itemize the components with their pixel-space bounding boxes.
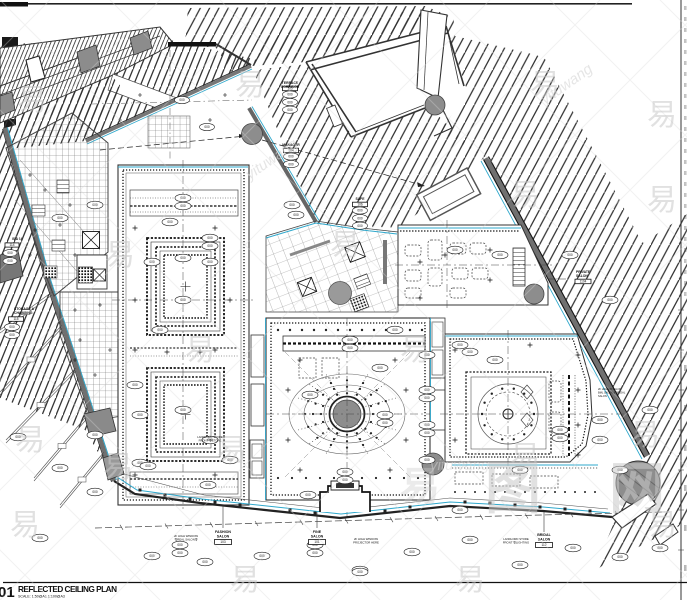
svg-text:115: 115 (13, 317, 18, 321)
svg-text:000: 000 (570, 546, 576, 550)
svg-text:00: 00 (683, 149, 687, 153)
svg-text:000: 000 (167, 220, 173, 224)
svg-text:CORRIDOR: CORRIDOR (281, 85, 300, 89)
svg-text:000: 000 (617, 555, 623, 559)
svg-text:000: 000 (57, 216, 63, 220)
svg-text:000: 000 (180, 204, 186, 208)
svg-text:000: 000 (357, 224, 363, 228)
svg-text:000: 000 (305, 493, 311, 497)
svg-text:000: 000 (683, 325, 687, 331)
svg-text:000: 000 (179, 98, 185, 102)
svg-text:000: 000 (357, 216, 363, 220)
svg-text:000: 000 (177, 543, 183, 547)
svg-text:000: 000 (293, 213, 299, 217)
svg-text:000: 000 (177, 551, 183, 555)
svg-text:000: 000 (287, 100, 293, 104)
svg-text:000: 000 (452, 248, 458, 252)
svg-text:00: 00 (683, 17, 687, 21)
svg-text:106: 106 (357, 203, 363, 207)
svg-text:000: 000 (683, 525, 687, 531)
svg-text:000: 000 (9, 325, 15, 329)
svg-text:000: 000 (92, 490, 98, 494)
svg-text:易: 易 (103, 451, 133, 484)
svg-text:SALON: SALON (576, 274, 588, 278)
svg-text:000: 000 (180, 408, 186, 412)
svg-text:000: 000 (342, 478, 348, 482)
svg-text:易: 易 (15, 424, 45, 457)
svg-text:000: 000 (683, 445, 687, 451)
svg-text:易: 易 (230, 564, 260, 597)
svg-text:易: 易 (105, 239, 135, 272)
svg-text:000: 000 (357, 209, 363, 213)
svg-text:易: 易 (647, 99, 677, 132)
svg-text:易: 易 (217, 434, 247, 467)
svg-text:易: 易 (17, 84, 47, 117)
svg-text:000: 000 (457, 343, 463, 347)
svg-text:000: 000 (9, 333, 15, 337)
svg-text:000: 000 (205, 483, 211, 487)
svg-text:000: 000 (145, 464, 151, 468)
svg-text:00: 00 (683, 270, 687, 274)
svg-text:易: 易 (400, 334, 430, 367)
svg-text:00: 00 (683, 105, 687, 109)
svg-text:000: 000 (307, 393, 313, 397)
svg-text:000: 000 (382, 421, 388, 425)
svg-text:易: 易 (455, 564, 485, 597)
svg-text:101: 101 (314, 540, 320, 544)
svg-text:00: 00 (683, 160, 687, 164)
svg-text:易: 易 (10, 509, 40, 542)
svg-text:000: 000 (287, 108, 293, 112)
svg-text:易: 易 (400, 465, 440, 509)
svg-text:000: 000 (467, 538, 473, 542)
svg-text:00: 00 (683, 72, 687, 76)
svg-text:00: 00 (683, 204, 687, 208)
svg-text:REFLECTED CEILING PLAN: REFLECTED CEILING PLAN (18, 585, 117, 594)
svg-text:00: 00 (683, 83, 687, 87)
svg-text:000: 000 (312, 551, 318, 555)
svg-text:000: 000 (683, 485, 687, 491)
svg-text:000: 000 (409, 550, 415, 554)
svg-text:000: 000 (92, 433, 98, 437)
svg-text:00: 00 (683, 171, 687, 175)
svg-text:易: 易 (630, 419, 660, 452)
svg-text:00: 00 (683, 182, 687, 186)
svg-text:00: 00 (683, 50, 687, 54)
svg-text:易: 易 (235, 69, 265, 102)
svg-text:000: 000 (557, 428, 563, 432)
svg-text:00: 00 (683, 6, 687, 10)
svg-text:1104: 1104 (580, 280, 587, 284)
svg-text:000: 000 (683, 405, 687, 411)
svg-text:00: 00 (683, 94, 687, 98)
svg-text:000: 000 (204, 125, 210, 129)
svg-text:000: 000 (557, 436, 563, 440)
svg-text:000: 000 (207, 244, 213, 248)
svg-text:00: 00 (683, 138, 687, 142)
svg-text:000: 000 (207, 260, 213, 264)
svg-text:000: 000 (202, 560, 208, 564)
svg-text:000: 000 (288, 162, 294, 166)
svg-text:00: 00 (683, 127, 687, 131)
svg-text:000: 000 (647, 408, 653, 412)
svg-text:00: 00 (683, 215, 687, 219)
svg-text:00: 00 (683, 61, 687, 65)
svg-text:000: 000 (683, 365, 687, 371)
svg-text:000: 000 (517, 563, 523, 567)
svg-text:000: 000 (492, 358, 498, 362)
svg-text:000: 000 (683, 565, 687, 571)
svg-text:BRIDAL: BRIDAL (537, 533, 551, 537)
svg-text:000: 000 (137, 413, 143, 417)
svg-text:000: 000 (287, 93, 293, 97)
svg-text:000: 000 (424, 431, 430, 435)
svg-text:00: 00 (683, 116, 687, 120)
svg-text:SALON: SALON (217, 535, 230, 539)
svg-text:000: 000 (597, 418, 603, 422)
svg-text:000: 000 (497, 253, 503, 257)
svg-text:000: 000 (180, 256, 186, 260)
svg-text:CHANGING: CHANGING (14, 311, 33, 315)
svg-text:SCALE: 1:50@A1 1:100@A3: SCALE: 1:50@A1 1:100@A3 (18, 595, 65, 599)
svg-text:零REAL SALON零: 零REAL SALON零 (174, 538, 197, 542)
svg-text:00: 00 (683, 259, 687, 263)
svg-text:103: 103 (220, 540, 226, 544)
svg-text:00: 00 (683, 292, 687, 296)
svg-text:000: 000 (289, 203, 295, 207)
svg-text:00: 00 (683, 226, 687, 230)
svg-text:000: 000 (457, 508, 463, 512)
svg-text:SAFE: SAFE (355, 197, 365, 201)
svg-text:000: 000 (347, 338, 353, 342)
svg-text:000: 000 (382, 413, 388, 417)
svg-text:000: 000 (180, 298, 186, 302)
svg-text:00: 00 (683, 237, 687, 241)
svg-text:易: 易 (185, 334, 215, 367)
svg-text:FINE: FINE (313, 530, 322, 534)
svg-text:FASHION: FASHION (215, 530, 231, 534)
svg-text:000: 000 (607, 298, 613, 302)
svg-text:000: 000 (377, 366, 383, 370)
svg-text:00: 00 (683, 281, 687, 285)
svg-text:PROJECTOR HERE: PROJECTOR HERE (353, 541, 379, 545)
svg-text:000: 000 (7, 251, 13, 255)
svg-text:SALON: SALON (598, 394, 607, 398)
svg-text:114: 114 (9, 243, 14, 247)
svg-text:000: 000 (207, 236, 213, 240)
svg-text:000: 000 (392, 328, 398, 332)
svg-text:000: 000 (567, 253, 573, 257)
svg-text:00: 00 (683, 248, 687, 252)
svg-text:FRONT 零LIGHTING: FRONT 零LIGHTING (503, 541, 529, 545)
svg-text:00: 00 (683, 193, 687, 197)
svg-text:易: 易 (530, 69, 560, 102)
svg-text:易: 易 (510, 179, 540, 212)
svg-text:000: 000 (57, 466, 63, 470)
svg-text:00: 00 (683, 28, 687, 32)
svg-text:易: 易 (647, 184, 677, 217)
svg-text:00: 00 (683, 39, 687, 43)
svg-text:000: 000 (132, 383, 138, 387)
svg-text:易: 易 (330, 229, 360, 262)
svg-text:000: 000 (424, 396, 430, 400)
